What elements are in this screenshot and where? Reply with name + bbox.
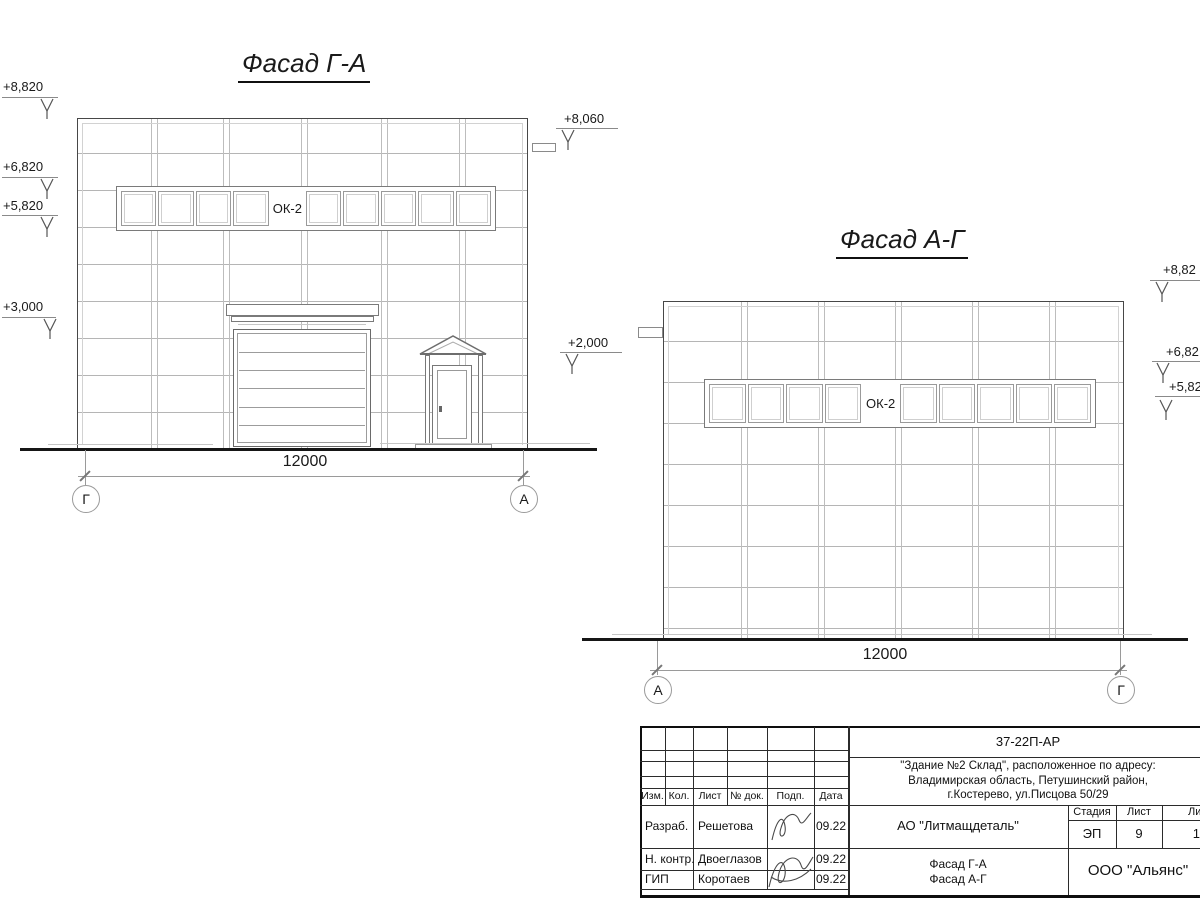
elevation-mark-label: +3,000 bbox=[3, 299, 43, 314]
door-slat bbox=[239, 352, 365, 353]
title-block-line bbox=[640, 761, 848, 762]
facade-ag-elevation: ОК-2 bbox=[663, 301, 1124, 640]
sheet-value: 9 bbox=[1116, 820, 1162, 848]
dimension-line bbox=[650, 670, 1127, 671]
project-address: "Здание №2 Склад", расположенное по адре… bbox=[848, 757, 1200, 805]
window-pane bbox=[196, 191, 231, 226]
extension-line bbox=[523, 450, 524, 485]
extension-line bbox=[85, 450, 86, 485]
signature bbox=[768, 806, 813, 847]
elevation-arrow-icon bbox=[40, 98, 54, 120]
ground-apron bbox=[380, 443, 590, 444]
elevation-mark-label: +6,820 bbox=[3, 159, 43, 174]
elevation-mark-label: +8,820 bbox=[3, 79, 43, 94]
title-block-border bbox=[640, 895, 1200, 898]
facade-ag-title: Фасад А-Г bbox=[836, 224, 968, 259]
axis-circle-a: А bbox=[644, 676, 672, 704]
drain-stub bbox=[638, 327, 663, 338]
signer-role: ГИП bbox=[645, 870, 695, 889]
panel-joint bbox=[381, 119, 388, 449]
door-handle bbox=[439, 406, 442, 412]
stage-label: Стадия bbox=[1068, 805, 1116, 820]
axis-circle-g: Г bbox=[1107, 676, 1135, 704]
window-label: ОК-2 bbox=[271, 191, 304, 226]
sheets-label: Лист bbox=[1162, 805, 1200, 820]
window-pane bbox=[158, 191, 193, 226]
panel-joint bbox=[895, 302, 902, 639]
elevation-arrow-icon bbox=[40, 178, 54, 200]
window-pane bbox=[456, 191, 491, 226]
elevation-arrow-icon bbox=[561, 129, 575, 151]
window-pane bbox=[1016, 384, 1053, 423]
gate-canopy bbox=[226, 304, 379, 316]
col-header-podp: Подп. bbox=[767, 788, 814, 805]
sheet-label: Лист bbox=[1116, 805, 1162, 820]
panel-joint bbox=[223, 119, 230, 449]
elevation-mark-label: +5,820 bbox=[3, 198, 43, 213]
garage-door bbox=[233, 329, 371, 447]
stage-value: ЭП bbox=[1068, 820, 1116, 848]
panel-joint bbox=[151, 119, 158, 449]
sign-date: 09.22 bbox=[814, 805, 848, 848]
door-slat bbox=[239, 388, 365, 389]
panel-joint bbox=[1049, 302, 1056, 639]
signer-name: Коротаев bbox=[698, 870, 766, 889]
col-header-data: Дата bbox=[814, 788, 848, 805]
window-pane bbox=[381, 191, 416, 226]
window-pane bbox=[786, 384, 823, 423]
signer-role: Н. контр. bbox=[645, 848, 695, 870]
col-header-kol: Кол. bbox=[665, 788, 693, 805]
elevation-mark-label: +5,82 bbox=[1169, 379, 1200, 394]
elevation-mark-label: +2,000 bbox=[568, 335, 608, 350]
address-line: Владимирская область, Петушинский район, bbox=[908, 774, 1148, 788]
window-pane bbox=[825, 384, 862, 423]
door-slat bbox=[239, 370, 365, 371]
sign-date: 09.22 bbox=[814, 848, 848, 870]
elevation-leader bbox=[1155, 396, 1200, 397]
panel-joint bbox=[818, 302, 825, 639]
drain-stub bbox=[532, 143, 556, 152]
elevation-mark-label: +8,82 bbox=[1163, 262, 1196, 277]
elevation-arrow-icon bbox=[1155, 281, 1169, 303]
ground-line bbox=[20, 448, 597, 451]
col-header-izm: Изм. bbox=[640, 788, 665, 805]
title-block-line bbox=[640, 889, 848, 890]
gate-canopy-shadow bbox=[238, 324, 366, 325]
signer-name: Двоеглазов bbox=[698, 848, 766, 870]
design-org: ООО "Альянс" bbox=[1068, 848, 1200, 895]
door-slat bbox=[239, 407, 365, 408]
address-line: "Здание №2 Склад", расположенное по адре… bbox=[900, 759, 1155, 773]
window-pane bbox=[233, 191, 268, 226]
sign-date: 09.22 bbox=[814, 870, 848, 889]
elevation-mark-label: +8,060 bbox=[564, 111, 604, 126]
window-pane bbox=[343, 191, 378, 226]
title-block-border bbox=[640, 726, 642, 897]
elevation-arrow-icon bbox=[1159, 399, 1173, 421]
window-pane bbox=[977, 384, 1014, 423]
window-pane bbox=[900, 384, 937, 423]
drawing-title: Фасад Г-А Фасад А-Г bbox=[848, 848, 1068, 895]
title-block-line bbox=[640, 750, 848, 751]
door-slat bbox=[239, 425, 365, 426]
axis-circle-g: Г bbox=[72, 485, 100, 513]
dimension-text: 12000 bbox=[815, 646, 955, 664]
facade-ga-elevation: ОК-2 bbox=[77, 118, 528, 450]
entrance-door bbox=[432, 365, 472, 444]
doc-number: 37-22П-АР bbox=[848, 727, 1200, 757]
porch-post bbox=[478, 355, 483, 444]
elevation-arrow-icon bbox=[40, 216, 54, 238]
entrance-door-leaf bbox=[437, 370, 467, 439]
sheets-value: 14 bbox=[1162, 820, 1200, 848]
col-header-dok: № док. bbox=[727, 788, 767, 805]
elevation-arrow-icon bbox=[565, 353, 579, 375]
window-pane bbox=[121, 191, 156, 226]
address-line: г.Костерево, ул.Писцова 50/29 bbox=[948, 788, 1109, 802]
axis-circle-a: А bbox=[510, 485, 538, 513]
col-header-list: Лист bbox=[693, 788, 727, 805]
drawing-sheet: Фасад Г-А ОК-2 bbox=[0, 0, 1200, 900]
elevation-arrow-icon bbox=[1156, 362, 1170, 384]
window-label: ОК-2 bbox=[863, 384, 898, 423]
title-block-line bbox=[640, 776, 848, 777]
dimension-text: 12000 bbox=[235, 453, 375, 471]
ground-apron bbox=[48, 444, 213, 445]
signer-name: Решетова bbox=[698, 805, 766, 848]
window-pane bbox=[748, 384, 785, 423]
facade-ga-title: Фасад Г-А bbox=[238, 48, 370, 83]
drawing-title-line: Фасад Г-А bbox=[929, 857, 986, 872]
ground-line bbox=[582, 638, 1188, 641]
gate-canopy bbox=[231, 316, 374, 322]
window-ribbon: ОК-2 bbox=[116, 186, 496, 231]
ground-apron bbox=[612, 634, 1152, 635]
signature bbox=[763, 849, 815, 894]
window-pane bbox=[418, 191, 453, 226]
window-pane bbox=[1054, 384, 1091, 423]
window-ribbon: ОК-2 bbox=[704, 379, 1096, 428]
porch-post bbox=[425, 355, 430, 444]
elevation-mark-label: +6,82 bbox=[1166, 344, 1199, 359]
dimension-line bbox=[78, 476, 530, 477]
panel-joint bbox=[972, 302, 979, 639]
drawing-title-line: Фасад А-Г bbox=[929, 872, 986, 887]
signer-role: Разраб. bbox=[645, 805, 693, 848]
customer-company: АО "Литмащдеталь" bbox=[848, 805, 1068, 848]
elevation-arrow-icon bbox=[43, 318, 57, 340]
window-pane bbox=[939, 384, 976, 423]
window-pane bbox=[306, 191, 341, 226]
window-pane bbox=[709, 384, 746, 423]
panel-joint bbox=[741, 302, 748, 639]
